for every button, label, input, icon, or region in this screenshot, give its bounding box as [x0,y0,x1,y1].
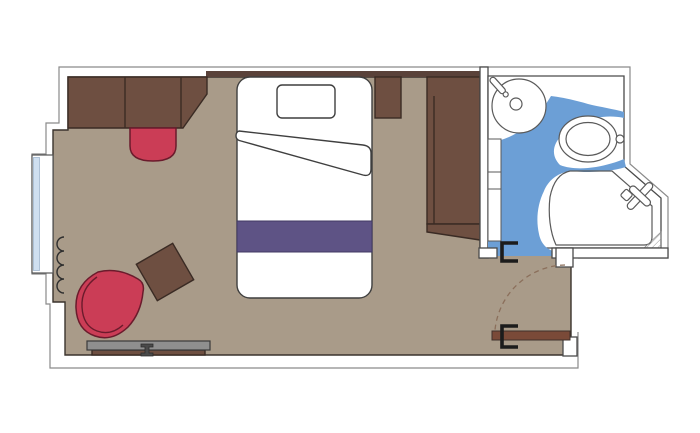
door-jamb-stub [556,248,573,267]
bathroom-west-wall [480,67,488,258]
nightstand [375,77,401,118]
bed-runner [237,221,372,252]
cabin-floor-plan [0,0,700,433]
sink-drain [510,98,522,110]
shelves [488,139,501,241]
floor-plan-canvas [0,0,700,433]
sofa [68,77,207,128]
flush-button [616,135,624,143]
window-glass [34,158,40,271]
bathroom-south-wall [479,248,497,258]
headboard-wall-trim [206,71,480,77]
vanity-stool [130,128,176,161]
wardrobe [427,77,480,224]
toilet-bowl [566,123,610,156]
pillow [277,85,335,118]
